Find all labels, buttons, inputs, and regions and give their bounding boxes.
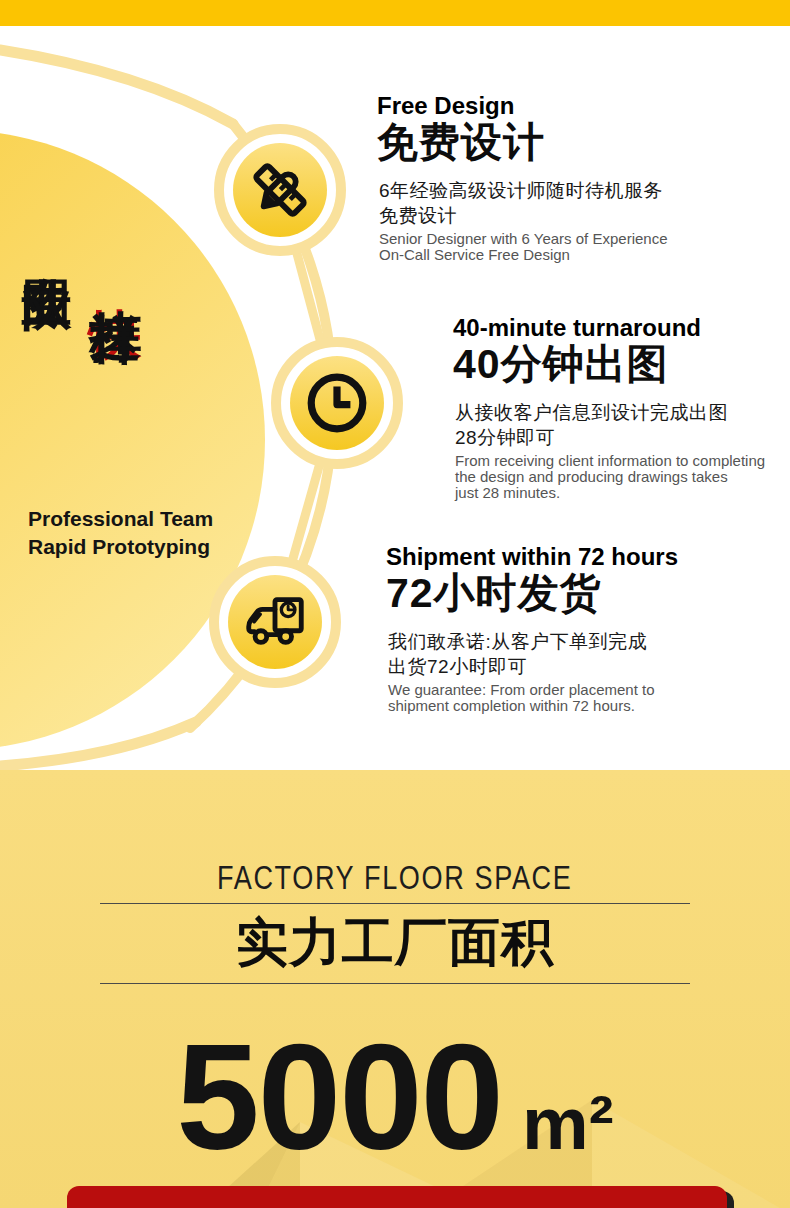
- feature-desc-en: From receiving client information to com…: [455, 453, 765, 501]
- badge-inner-circle: [233, 143, 327, 237]
- promo-poster: 专业团队 快速打样 Professional Team Rapid Protot…: [0, 0, 790, 1208]
- feature-title-cn: 40分钟出图: [453, 341, 765, 387]
- feature-desc-cn: 从接收客户信息到设计完成出图 28分钟即可: [455, 400, 765, 450]
- badge-free-design: [214, 124, 346, 256]
- factory-section: FACTORY FLOOR SPACE 实力工厂面积 5000 m²: [0, 770, 790, 1208]
- vertical-title-rest: 速打样: [87, 268, 145, 274]
- top-yellow-bar: [0, 0, 790, 26]
- floor-area-unit: m²: [522, 1086, 614, 1161]
- badge-inner-circle: [228, 575, 322, 669]
- floor-area-value: 5000: [176, 1022, 502, 1172]
- feature-shipment-72-hours: Shipment within 72 hours 72小时发货 我们敢承诺:从客…: [386, 544, 678, 714]
- badge-40-minute: [271, 337, 403, 469]
- factory-heading-en-text: FACTORY FLOOR SPACE: [217, 860, 572, 896]
- floor-area-figure: 5000 m²: [0, 1022, 790, 1172]
- feature-title-cn: 72小时发货: [386, 570, 678, 616]
- badge-72-hours: [209, 556, 341, 688]
- vertical-title-rapid-prototyping: 快速打样: [90, 266, 142, 274]
- divider-line-bottom: [100, 983, 690, 984]
- feature-title-cn: 免费设计: [377, 119, 668, 165]
- feature-free-design: Free Design 免费设计 6年经验高级设计师随时待机服务 免费设计 Se…: [377, 93, 668, 263]
- feature-title-en: Free Design: [377, 93, 668, 119]
- vertical-title-professional-team: 专业团队: [22, 236, 72, 244]
- feature-desc-cn: 我们敢承诺:从客户下单到完成 出货72小时即可: [388, 629, 678, 679]
- hero-section: 专业团队 快速打样 Professional Team Rapid Protot…: [0, 26, 790, 770]
- feature-title-en: Shipment within 72 hours: [386, 544, 678, 570]
- feature-desc-cn: 6年经验高级设计师随时待机服务 免费设计: [379, 178, 668, 228]
- divider-line-top: [100, 903, 690, 904]
- feature-desc-en: We guarantee: From order placement to sh…: [388, 682, 678, 714]
- feature-title-en: 40-minute turnaround: [453, 315, 765, 341]
- vertical-title-black-text: 专业团队: [19, 236, 75, 244]
- feature-40-minute-turnaround: 40-minute turnaround 40分钟出图 从接收客户信息到设计完成…: [453, 315, 765, 501]
- factory-heading-en: FACTORY FLOOR SPACE: [0, 860, 790, 896]
- truck-icon: [240, 594, 310, 650]
- feature-desc-en: Senior Designer with 6 Years of Experien…: [379, 231, 668, 263]
- badge-inner-circle: [290, 356, 384, 450]
- pencil-ruler-icon: [243, 153, 317, 227]
- bottom-red-bar: [67, 1186, 727, 1208]
- factory-heading-cn: 实力工厂面积: [0, 912, 790, 972]
- clock-icon: [304, 370, 370, 436]
- hero-subtitle-en: Professional Team Rapid Prototyping: [28, 505, 213, 561]
